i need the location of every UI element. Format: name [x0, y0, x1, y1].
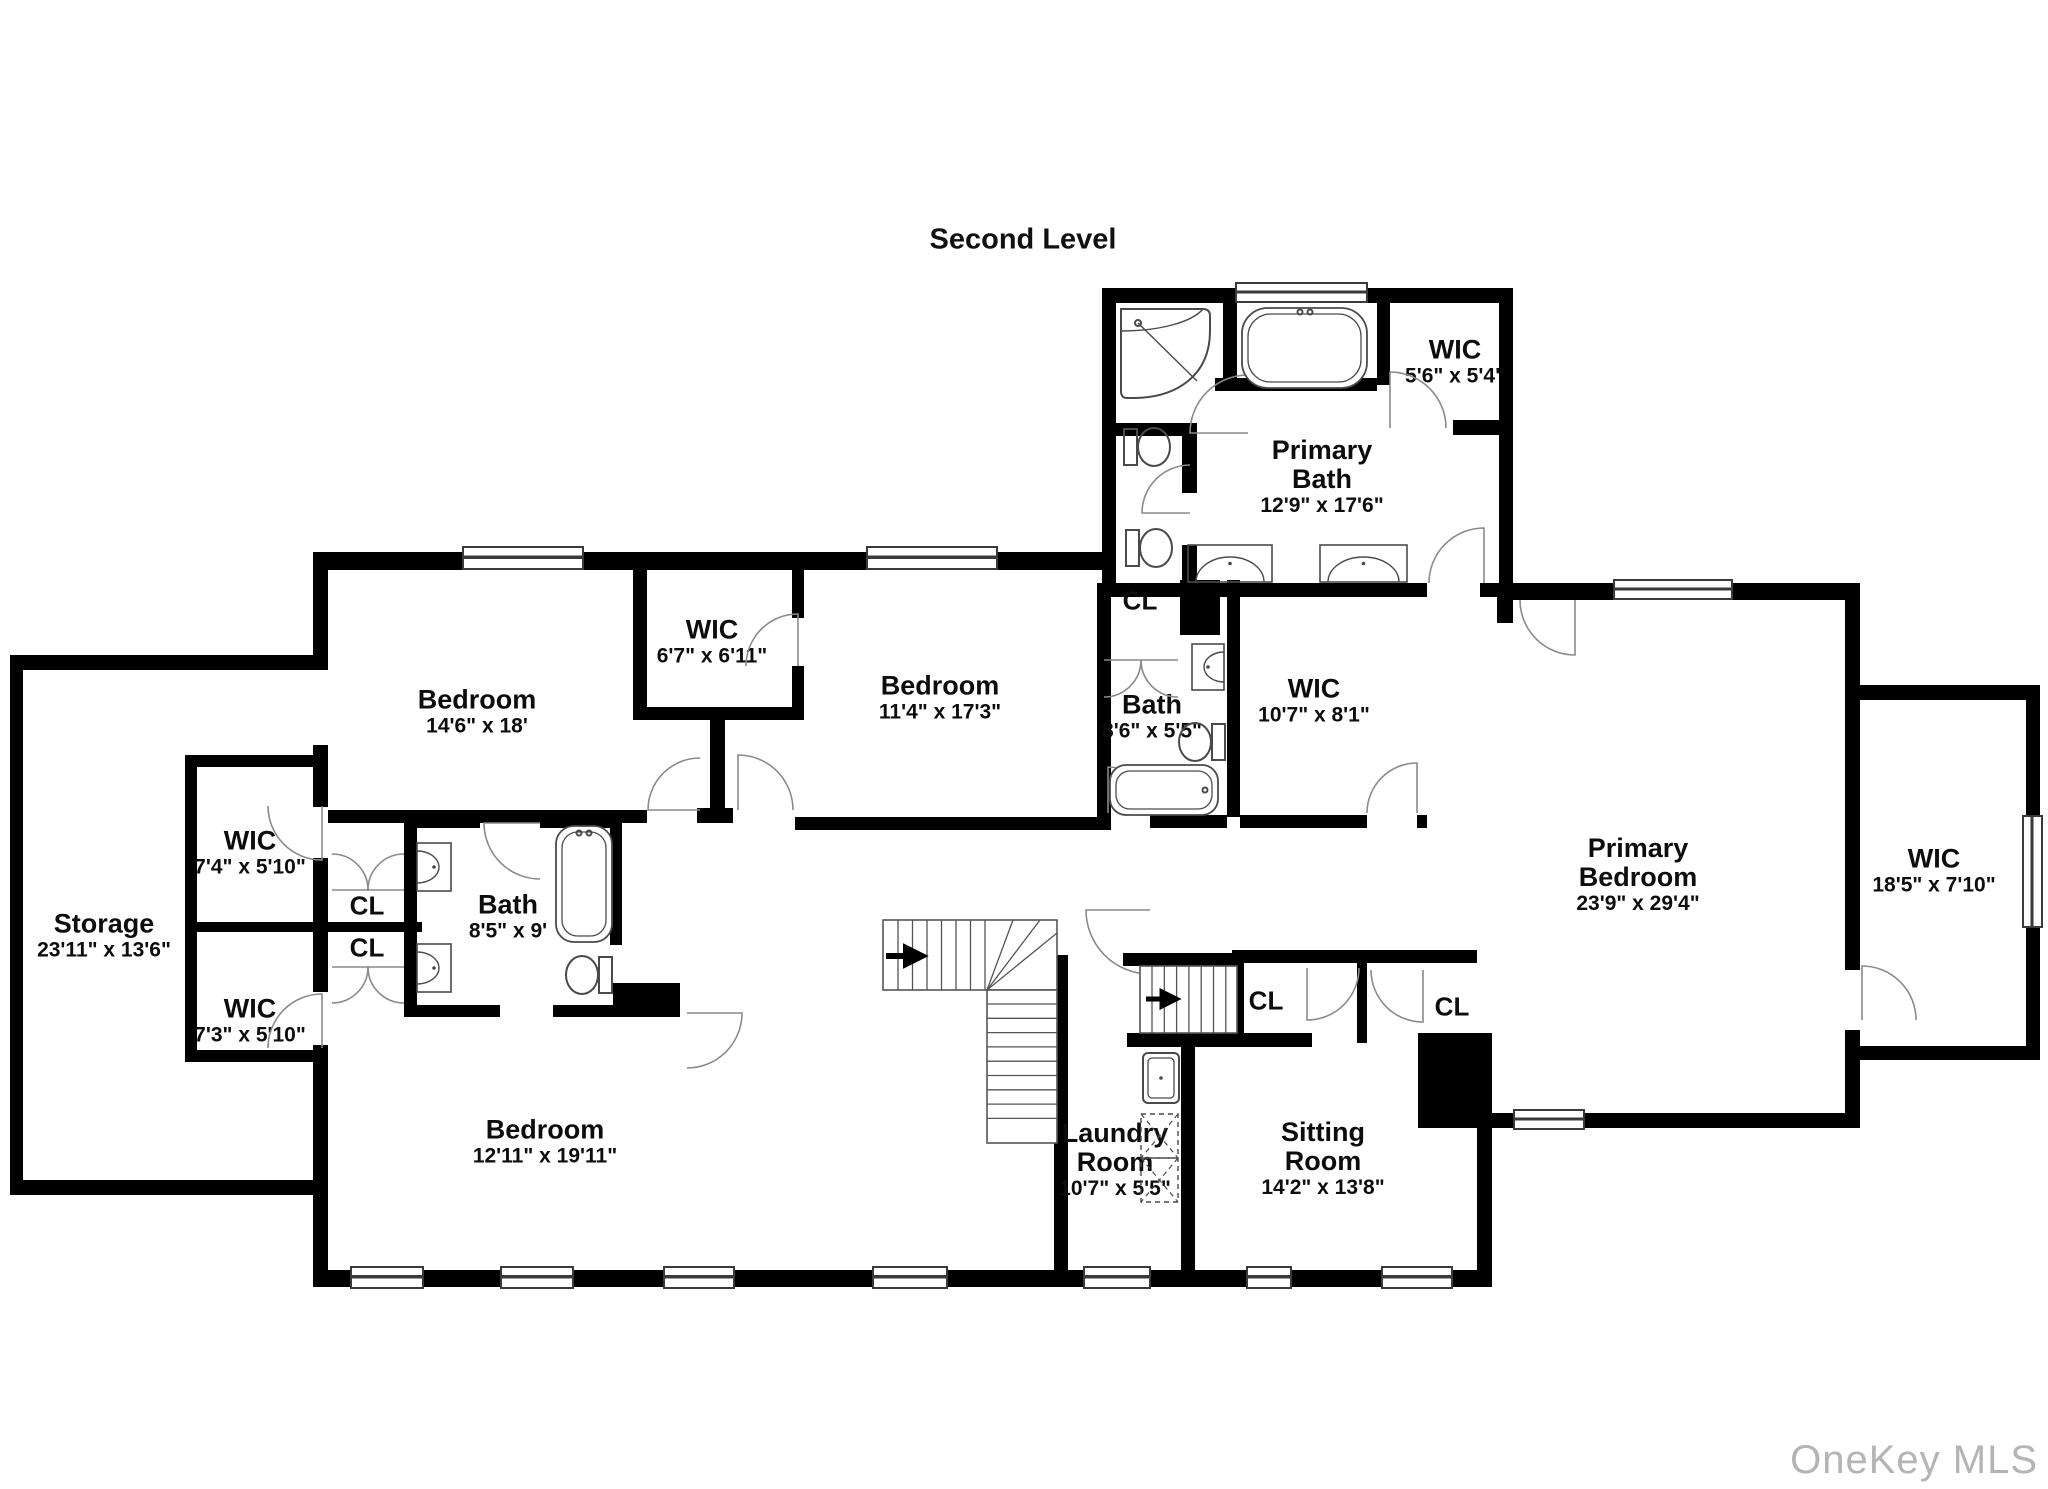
- stairs-lower-flight: [987, 990, 1057, 1143]
- door-arc: [268, 806, 322, 860]
- toilet-icon: [1138, 428, 1170, 466]
- door-arc: [484, 823, 540, 879]
- vanity-sink-icon: [1206, 665, 1210, 669]
- fixtures-layer: [0, 0, 2048, 1489]
- door-arc: [268, 994, 322, 1048]
- door-arc: [1367, 763, 1417, 813]
- vanity-sink-icon: [432, 865, 436, 869]
- vanity-sink-icon: [1362, 562, 1366, 566]
- door-arc: [332, 854, 368, 890]
- door-arc: [1390, 372, 1446, 428]
- bidet-icon: [1126, 530, 1139, 566]
- bathtub-icon: [1242, 308, 1367, 388]
- vanity-sink-icon: [1196, 557, 1264, 582]
- laundry-sink-icon: [1159, 1076, 1163, 1080]
- toilet-icon: [1179, 723, 1211, 761]
- vanity-sink-icon: [432, 966, 436, 970]
- door-arc: [687, 1013, 742, 1068]
- door-arc: [1520, 600, 1575, 655]
- shower-glass: [1121, 309, 1203, 331]
- door-arc: [368, 967, 404, 1003]
- vanity-sink-icon: [1228, 562, 1232, 566]
- door-arc: [368, 854, 404, 890]
- toilet-icon: [566, 956, 598, 994]
- toilet-icon: [1124, 429, 1137, 465]
- bathtub-icon: [556, 826, 612, 942]
- door-arc: [332, 967, 368, 1003]
- toilet-icon: [599, 957, 612, 993]
- door-arc: [1429, 528, 1484, 583]
- door-arc: [746, 614, 798, 666]
- washer-dryer-icon: [1141, 1114, 1178, 1158]
- floor-plan: Second Level Primary Bath 12'9" x 17'6" …: [0, 0, 2048, 1489]
- door-arc: [738, 755, 793, 810]
- door-arc: [1307, 968, 1359, 1020]
- vanity-sink-icon: [1328, 557, 1399, 582]
- door-arc: [1141, 660, 1178, 697]
- door-arc: [1190, 375, 1248, 433]
- door-arc: [1142, 465, 1190, 513]
- door-arc: [1086, 910, 1150, 974]
- door-arc: [1371, 970, 1423, 1022]
- bidet-icon: [1140, 529, 1172, 567]
- door-arc: [1104, 660, 1141, 697]
- door-arc: [648, 758, 700, 810]
- toilet-icon: [1212, 724, 1225, 760]
- shower-door-line: [1138, 323, 1197, 381]
- washer-dryer-icon: [1141, 1158, 1178, 1202]
- door-arc: [1862, 966, 1916, 1020]
